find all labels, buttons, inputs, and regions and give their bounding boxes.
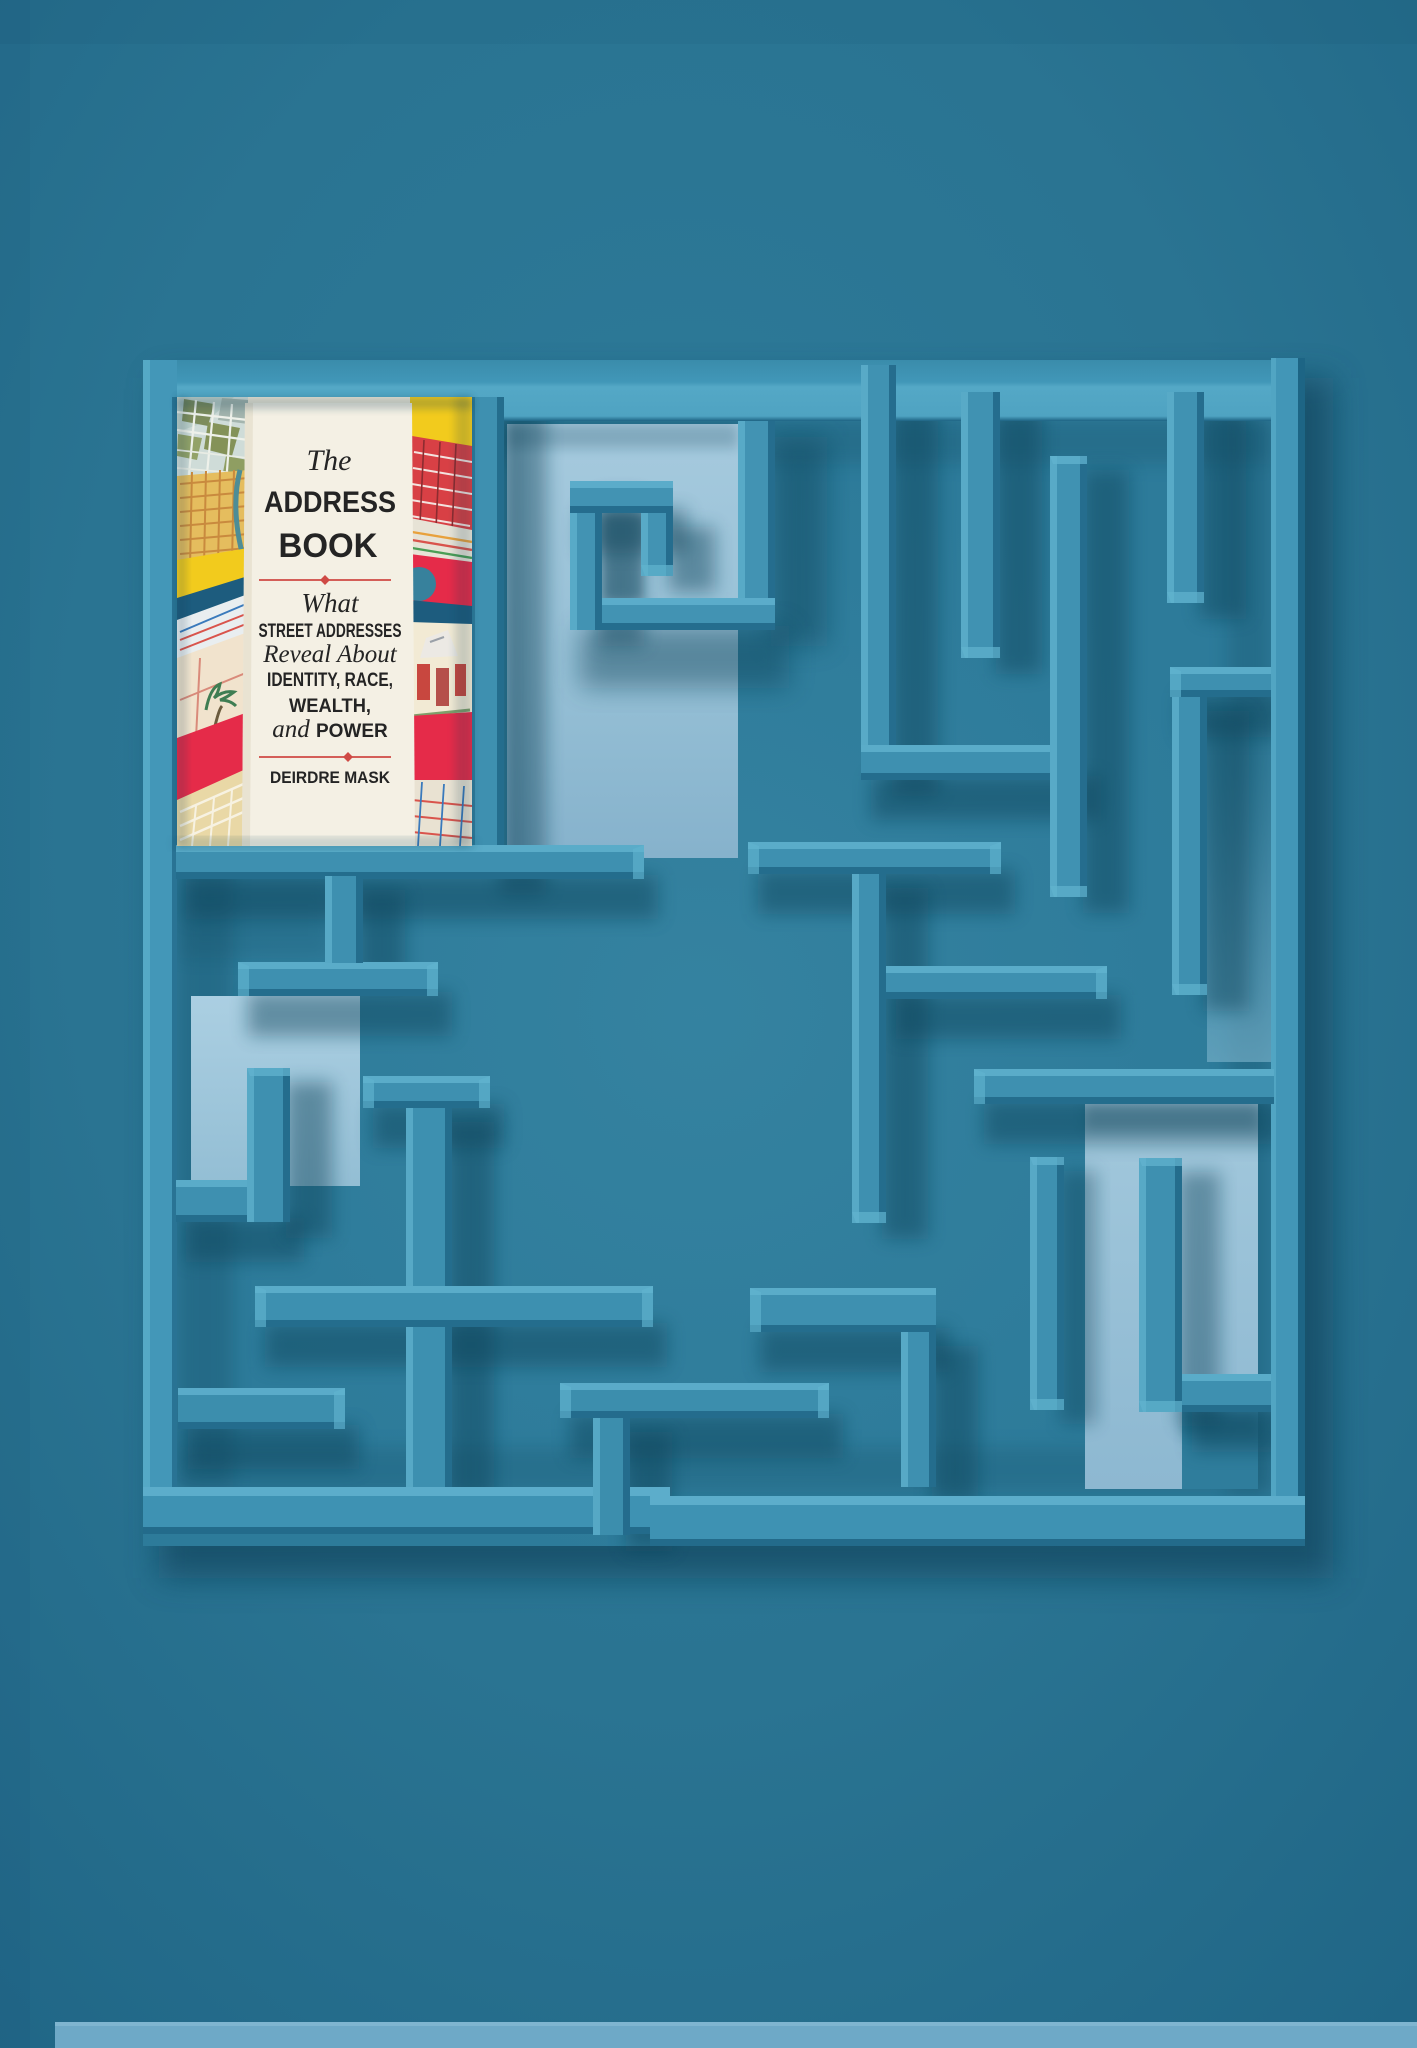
svg-text:and POWER: and POWER (272, 716, 388, 743)
svg-text:The: The (307, 444, 352, 477)
svg-text:WEALTH,: WEALTH, (289, 696, 371, 717)
svg-text:STREET ADDRESSES: STREET ADDRESSES (259, 621, 402, 642)
svg-text:Reveal About: Reveal About (262, 641, 398, 668)
svg-text:What: What (302, 588, 360, 618)
svg-text:BOOK: BOOK (279, 527, 378, 565)
svg-text:DEIRDRE MASK: DEIRDRE MASK (270, 768, 391, 787)
svg-text:ADDRESS: ADDRESS (264, 486, 396, 519)
svg-text:IDENTITY, RACE,: IDENTITY, RACE, (267, 670, 393, 691)
